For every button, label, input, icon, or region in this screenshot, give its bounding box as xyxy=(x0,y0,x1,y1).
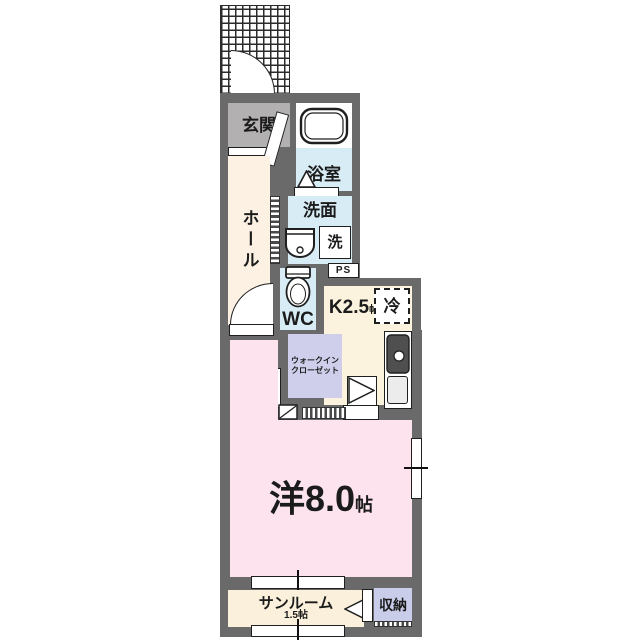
ps-label: PS xyxy=(336,266,351,276)
fridge-box: 冷 xyxy=(374,288,410,324)
kitchen-door-triangle xyxy=(348,377,375,404)
bathtub-icon xyxy=(298,106,350,146)
sunroom-door xyxy=(362,589,373,622)
hall-accordion-door xyxy=(270,196,280,264)
ps-box: PS xyxy=(328,263,359,278)
room-wc: WC xyxy=(280,268,316,330)
washer-box: 洗 xyxy=(319,226,351,259)
wc-label: WC xyxy=(280,310,316,329)
stove-icon xyxy=(387,376,408,404)
side-window-tick xyxy=(404,467,428,469)
bath-door-triangle xyxy=(297,170,316,188)
sliding-door xyxy=(302,407,346,419)
fridge-label: 冷 xyxy=(384,298,401,315)
room-wic: ウォークイン クローゼット xyxy=(288,334,342,398)
hall-door xyxy=(229,324,274,336)
hall-label: ホール xyxy=(241,209,258,272)
sink-icon xyxy=(283,226,317,260)
toilet-icon xyxy=(283,265,313,309)
kitchen-opening xyxy=(343,405,379,420)
bathtub-area xyxy=(296,103,352,148)
sunroom-door-triangle xyxy=(344,599,364,619)
sunroom-label: サンルーム 1.5帖 xyxy=(259,596,334,621)
washroom-label: 洗面 xyxy=(288,202,352,219)
wic-label: ウォークイン クローゼット xyxy=(291,356,339,377)
kitchen-counter xyxy=(384,331,412,409)
kitchen-door-box xyxy=(347,376,377,406)
room-main: 洋8.0 帖 xyxy=(230,420,412,577)
floor-plan: 玄関 浴室 ホール 洗面 洗 PS xyxy=(0,0,640,640)
wall-corner-square xyxy=(278,404,298,420)
main-room-arm xyxy=(230,340,278,420)
storage-vent xyxy=(374,621,412,627)
kitchen-sink-icon xyxy=(386,334,410,374)
outer-window-tick xyxy=(297,619,299,640)
storage-label: 収納 xyxy=(379,598,407,612)
main-room-label: 洋8.0 帖 xyxy=(269,481,373,517)
room-storage: 収納 xyxy=(374,588,412,622)
washer-label: 洗 xyxy=(327,235,342,250)
